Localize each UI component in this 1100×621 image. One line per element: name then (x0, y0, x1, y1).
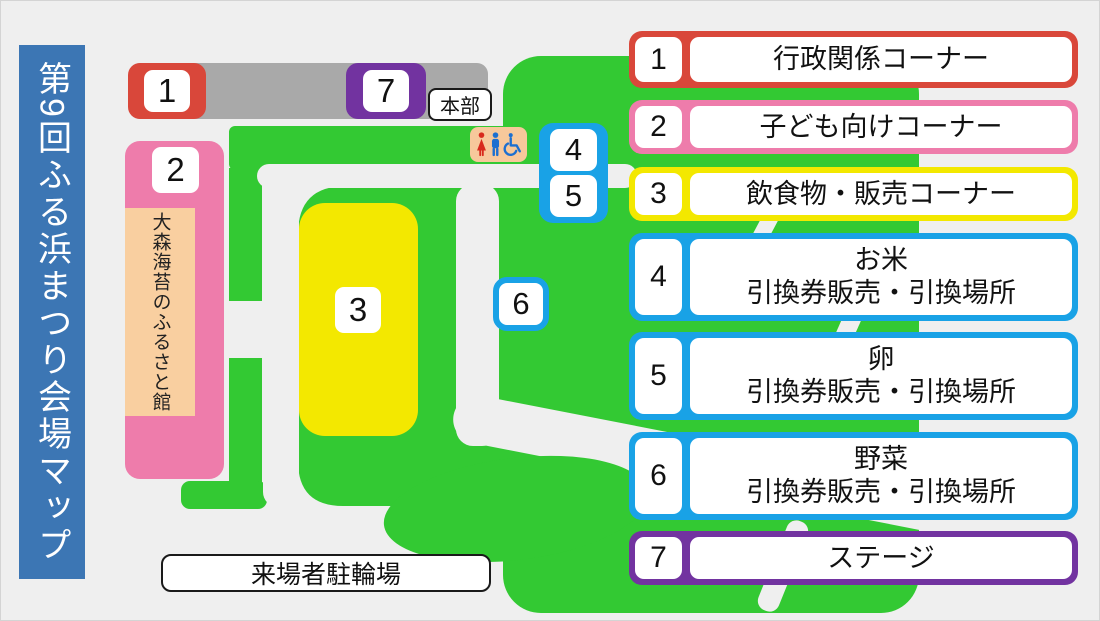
path-vertical-left (263, 179, 299, 507)
venue-title: 第9回ふる浜まつり会場マップ (28, 61, 77, 564)
museum-label-box: 大森海苔のふるさと館 (125, 208, 195, 416)
legend: 1 行政関係コーナー 2 子ども向けコーナー 3 飲食物・販売コーナー 4 お米… (629, 31, 1078, 591)
legend-item-6: 6 野菜引換券販売・引換場所 (629, 432, 1078, 520)
legend-item-5-number: 5 (635, 338, 682, 414)
legend-item-1-number: 1 (635, 37, 682, 82)
legend-item-5: 5 卵引換券販売・引換場所 (629, 332, 1078, 420)
grass-bottom-l (181, 481, 267, 509)
marker-6: 6 (493, 277, 549, 331)
legend-item-1: 1 行政関係コーナー (629, 31, 1078, 88)
venue-title-banner: 第9回ふる浜まつり会場マップ (19, 45, 85, 579)
legend-item-1-label: 行政関係コーナー (690, 37, 1072, 82)
headquarters-label: 本部 (428, 88, 492, 121)
marker-7: 7 (346, 63, 426, 119)
museum-label: 大森海苔のふるさと館 (147, 212, 174, 412)
legend-item-6-number: 6 (635, 438, 682, 514)
female-icon (475, 131, 488, 158)
legend-item-2-label: 子ども向けコーナー (690, 106, 1072, 148)
wheelchair-icon (503, 131, 523, 158)
bicycle-parking-label: 来場者駐輪場 (161, 554, 491, 592)
legend-item-5-label: 卵引換券販売・引換場所 (690, 338, 1072, 414)
marker-2: 2 (152, 147, 199, 193)
legend-item-2: 2 子ども向けコーナー (629, 100, 1078, 154)
marker-4-number: 4 (550, 129, 597, 171)
marker-3: 3 (335, 287, 381, 333)
grass-left-strip-lower (229, 358, 262, 482)
legend-item-3-number: 3 (635, 173, 682, 215)
marker-1: 1 (128, 63, 206, 119)
male-icon (489, 131, 502, 158)
marker-7-number: 7 (363, 70, 409, 112)
legend-item-2-number: 2 (635, 106, 682, 148)
grass-left-strip-upper (229, 168, 262, 301)
legend-item-4: 4 お米引換券販売・引換場所 (629, 233, 1078, 321)
marker-4-5-block: 4 5 (539, 123, 608, 223)
legend-item-3-label: 飲食物・販売コーナー (690, 173, 1072, 215)
legend-item-7: 7 ステージ (629, 531, 1078, 585)
toilet-sign (470, 127, 527, 162)
legend-item-4-label: お米引換券販売・引換場所 (690, 239, 1072, 315)
legend-item-7-number: 7 (635, 537, 682, 579)
legend-item-7-label: ステージ (690, 537, 1072, 579)
marker-5-number: 5 (550, 175, 597, 217)
legend-item-3: 3 飲食物・販売コーナー (629, 167, 1078, 221)
legend-item-4-number: 4 (635, 239, 682, 315)
legend-item-6-label: 野菜引換券販売・引換場所 (690, 438, 1072, 514)
marker-1-number: 1 (144, 70, 190, 112)
venue-map-page: 第9回ふる浜まつり会場マップ 1 7 本部 (0, 0, 1100, 621)
